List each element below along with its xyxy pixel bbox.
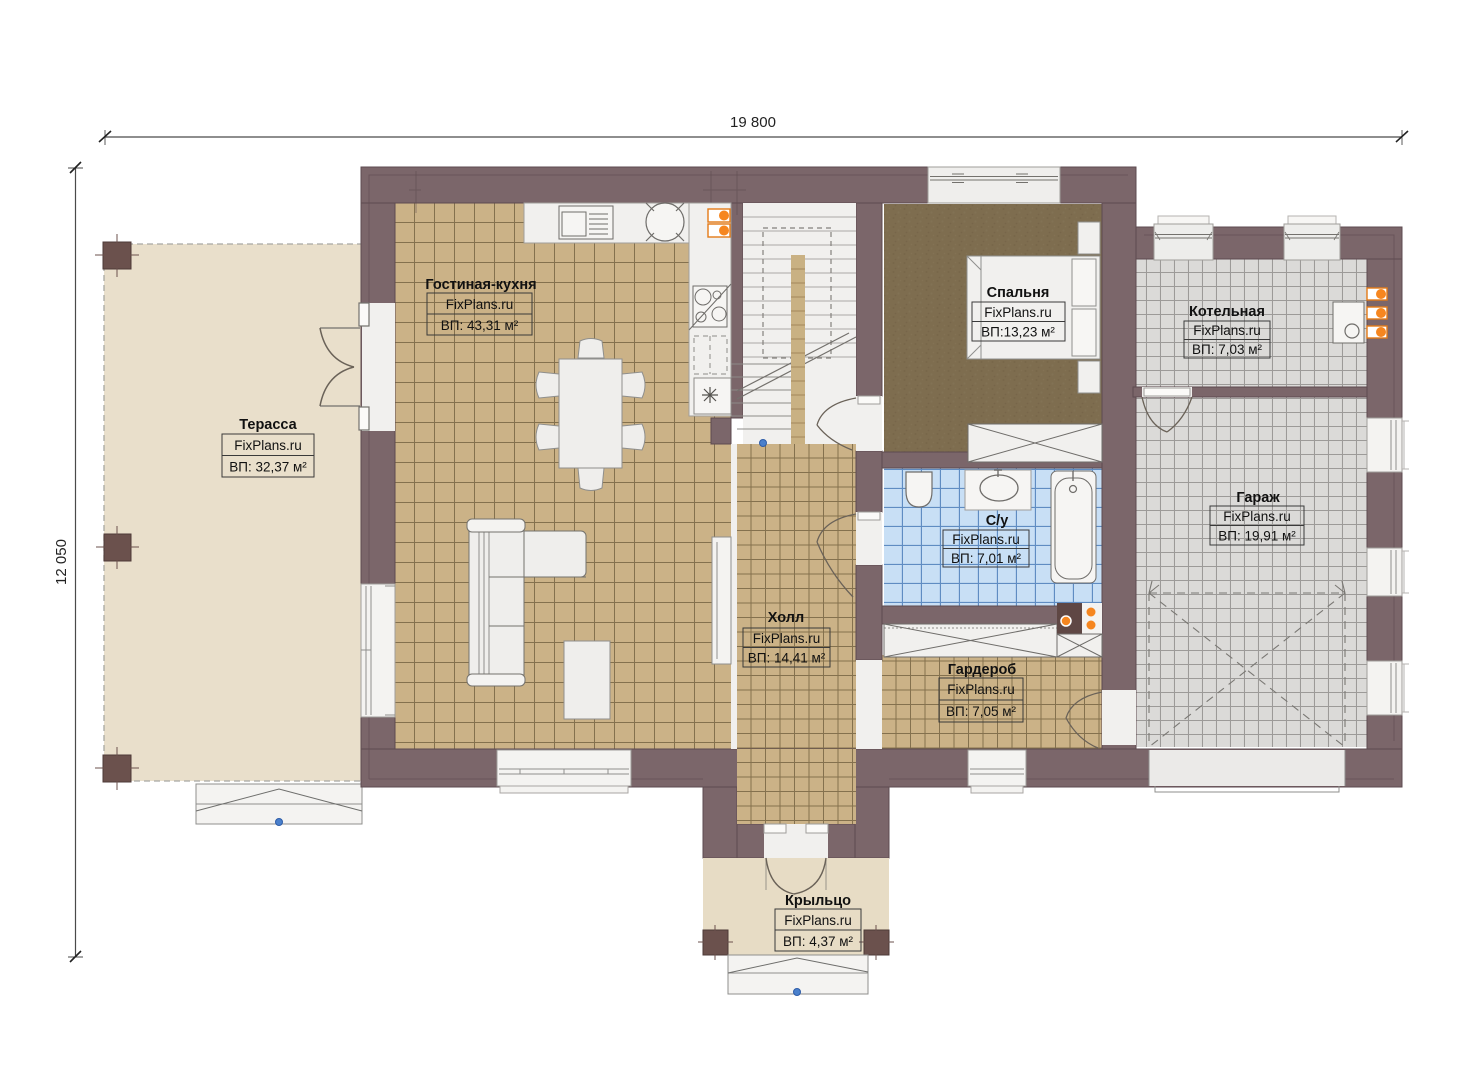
svg-text:FixPlans.ru: FixPlans.ru — [947, 682, 1015, 697]
svg-text:Крыльцо: Крыльцо — [785, 893, 851, 909]
svg-text:Терасса: Терасса — [239, 417, 297, 433]
svg-text:ВП: 7,03 м²: ВП: 7,03 м² — [1192, 342, 1263, 357]
svg-text:FixPlans.ru: FixPlans.ru — [784, 913, 852, 928]
svg-text:FixPlans.ru: FixPlans.ru — [952, 532, 1020, 547]
svg-text:ВП: 43,31 м²: ВП: 43,31 м² — [441, 318, 519, 333]
svg-text:12 050: 12 050 — [53, 539, 70, 585]
svg-text:ВП: 7,05 м²: ВП: 7,05 м² — [946, 704, 1017, 719]
svg-text:С/у: С/у — [986, 513, 1009, 529]
svg-text:ВП: 7,01 м²: ВП: 7,01 м² — [951, 551, 1022, 566]
svg-text:Холл: Холл — [768, 610, 804, 626]
svg-text:Гараж: Гараж — [1236, 490, 1280, 506]
svg-text:ВП: 14,41 м²: ВП: 14,41 м² — [748, 651, 826, 666]
svg-text:19 800: 19 800 — [730, 114, 776, 131]
svg-text:FixPlans.ru: FixPlans.ru — [1223, 509, 1291, 524]
svg-text:FixPlans.ru: FixPlans.ru — [1193, 323, 1261, 338]
svg-text:Спальня: Спальня — [987, 285, 1050, 301]
svg-text:FixPlans.ru: FixPlans.ru — [446, 297, 514, 312]
svg-text:FixPlans.ru: FixPlans.ru — [753, 631, 821, 646]
svg-text:ВП: 19,91 м²: ВП: 19,91 м² — [1218, 529, 1296, 544]
svg-text:FixPlans.ru: FixPlans.ru — [984, 305, 1052, 320]
svg-text:ВП: 32,37 м²: ВП: 32,37 м² — [229, 460, 307, 475]
svg-text:Гардероб: Гардероб — [948, 662, 1017, 678]
svg-text:ВП: 4,37 м²: ВП: 4,37 м² — [783, 934, 854, 949]
svg-text:Котельная: Котельная — [1189, 304, 1265, 320]
svg-text:FixPlans.ru: FixPlans.ru — [234, 438, 302, 453]
svg-text:ВП:13,23 м²: ВП:13,23 м² — [981, 325, 1055, 340]
svg-text:Гостиная-кухня: Гостиная-кухня — [425, 277, 536, 293]
